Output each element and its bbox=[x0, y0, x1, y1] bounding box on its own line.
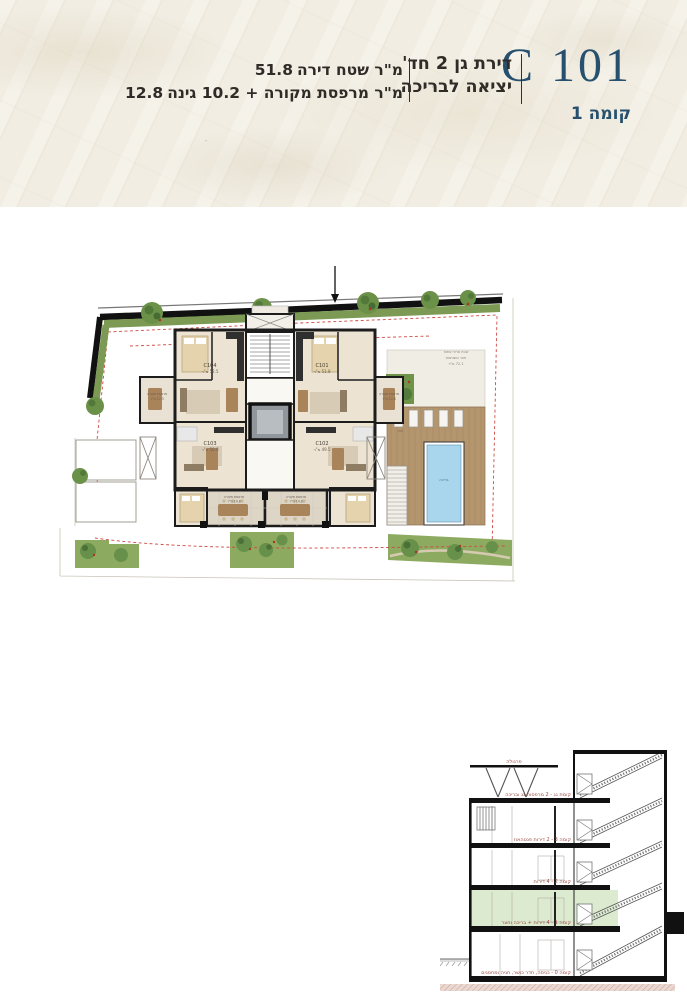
terrace-right-area: 14.8 מ"ר bbox=[289, 500, 303, 504]
pergola-label: פרגולה bbox=[506, 759, 521, 765]
site-note-line: חצר משותפת bbox=[446, 356, 467, 360]
floor-label-1: קומה 1 - 4 דירות + בריכה וחצר bbox=[501, 920, 571, 926]
terrace-left-label: מרפסת מקורה bbox=[224, 495, 244, 499]
terrace-right-label: מרפסת מקורה bbox=[286, 495, 306, 499]
unit-area-label: 49.5 מ"ר bbox=[314, 447, 331, 452]
site-note-line: שטח פרטי פתוח bbox=[444, 350, 469, 354]
header-divider-right bbox=[521, 54, 522, 104]
apartment-type-line2: יציאה לבריכה bbox=[401, 76, 512, 99]
elevator-doors bbox=[577, 774, 592, 970]
building bbox=[140, 306, 403, 528]
floor-label-3: קומה 3 - 2 דירות פנטהאוז bbox=[514, 837, 572, 843]
floor-label-roof: קומת גג - 2 מרפסות גג ובריכה bbox=[505, 792, 571, 798]
building-section-drawing: פרגולה קומת גג - 2 מרפסות גג ובריכה קומה… bbox=[440, 740, 687, 995]
floor-label-0: קומה 0 - כניסה, חדר כושר, חניה ומחסנים bbox=[481, 970, 571, 976]
unit-area-label: 51.8 מ"ר bbox=[314, 369, 331, 374]
area-line-apartment: 51.8מ"ר שטח דירה bbox=[125, 59, 403, 82]
apartment-area-value: 51.8 bbox=[255, 61, 293, 79]
flyer-page: C 101 קומה 1 דירת גן 2 חד' יציאה לבריכה … bbox=[0, 0, 687, 995]
bed bbox=[346, 494, 370, 522]
floor-label: קומה 1 bbox=[571, 104, 631, 124]
section-cut-arrow bbox=[331, 266, 339, 303]
area-line-balcony: 12.8מ"ר מרפסת מקורה + 10.2 גינה bbox=[125, 82, 403, 105]
balcony-area-text: מ"ר מרפסת מקורה + 10.2 גינה bbox=[167, 84, 403, 102]
deck-stairs bbox=[387, 466, 407, 525]
apartment-area-text: מ"ר שטח דירה bbox=[297, 61, 403, 79]
stair-core bbox=[246, 306, 294, 490]
floor-label-2: קומה 2 - 4 דירות bbox=[534, 879, 572, 885]
roof-terrace-stairs bbox=[477, 807, 495, 830]
paper-texture-header: C 101 קומה 1 דירת גן 2 חד' יציאה לבריכה … bbox=[0, 0, 687, 207]
floor-plan-drawing: C104 52.5 מ"ר C101 51.8 מ"ר C103 50.0 מ"… bbox=[0, 250, 687, 600]
balcony-left-area: 12.3 מ"ר bbox=[150, 397, 164, 401]
unit-area-label: 52.5 מ"ר bbox=[202, 369, 219, 374]
terrace-left-area: 14.8 מ"ר bbox=[227, 500, 241, 504]
header-divider-left bbox=[409, 58, 410, 102]
bed bbox=[180, 494, 204, 522]
balcony-right-label: מרפסת מקורה bbox=[379, 392, 399, 396]
pool-label: בריכה bbox=[439, 478, 448, 482]
garden-patches bbox=[75, 532, 512, 568]
balcony-area-value: 12.8 bbox=[125, 84, 163, 102]
section-labels: פרגולה קומת גג - 2 מרפסות גג ובריכה קומה… bbox=[481, 759, 571, 976]
apartment-type-line1: דירת גן 2 חד' bbox=[401, 53, 512, 76]
balcony-left-label: מרפסת מקורה bbox=[147, 392, 167, 396]
unit-area-label: 50.0 מ"ר bbox=[202, 447, 219, 452]
balcony-right-area: 12.8 מ"ר bbox=[382, 397, 396, 401]
site-note-line: 72.1 מ"ר bbox=[448, 362, 463, 366]
slabs-and-walls bbox=[469, 750, 684, 982]
yard-label: חצר bbox=[397, 429, 403, 433]
area-summary: 51.8מ"ר שטח דירה 12.8מ"ר מרפסת מקורה + 1… bbox=[125, 59, 403, 106]
pool bbox=[427, 445, 461, 522]
apartment-description: דירת גן 2 חד' יציאה לבריכה bbox=[401, 53, 512, 99]
